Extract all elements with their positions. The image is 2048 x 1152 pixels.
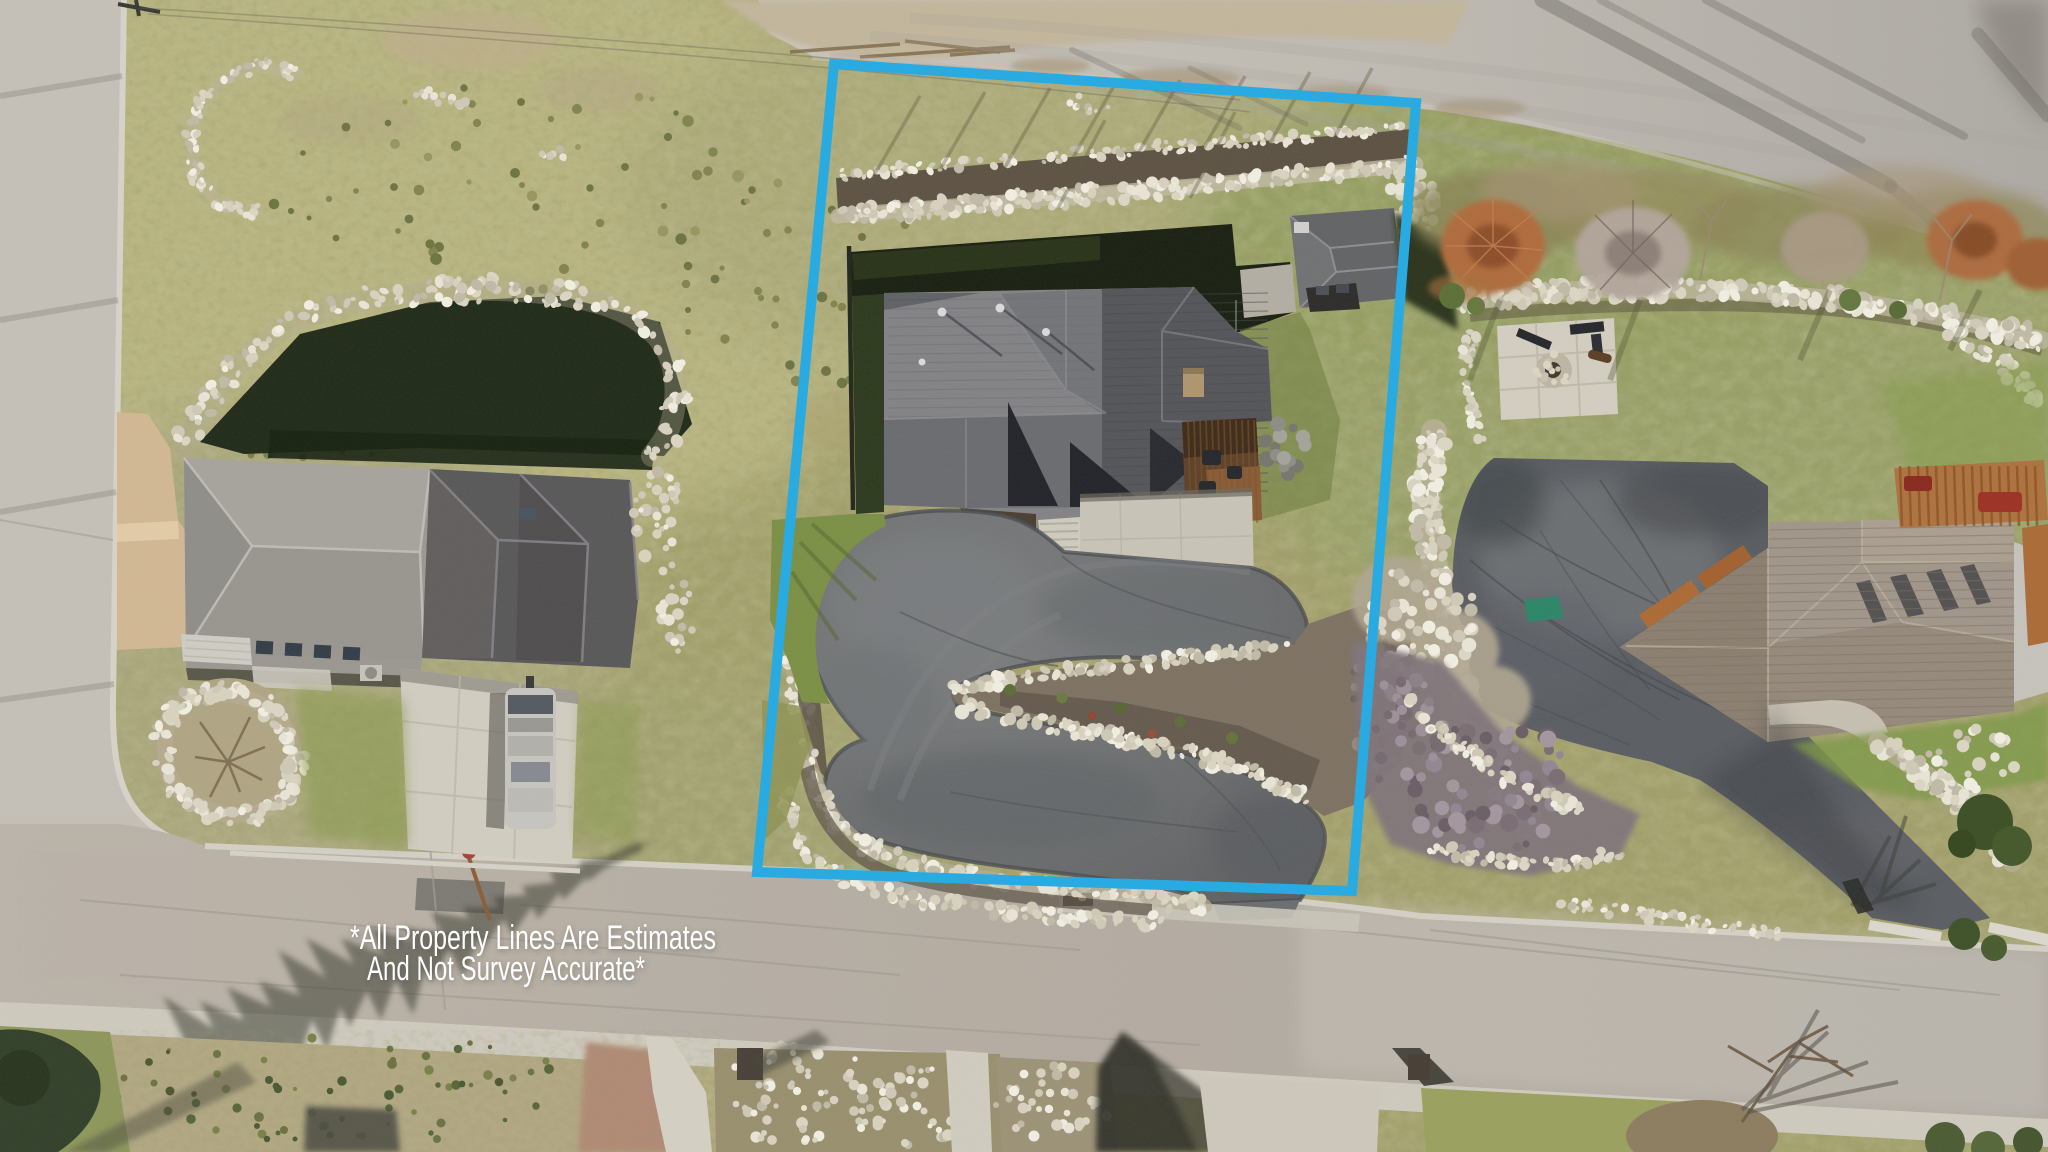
svg-text:And Not Survey Accurate*: And Not Survey Accurate*	[367, 950, 645, 988]
